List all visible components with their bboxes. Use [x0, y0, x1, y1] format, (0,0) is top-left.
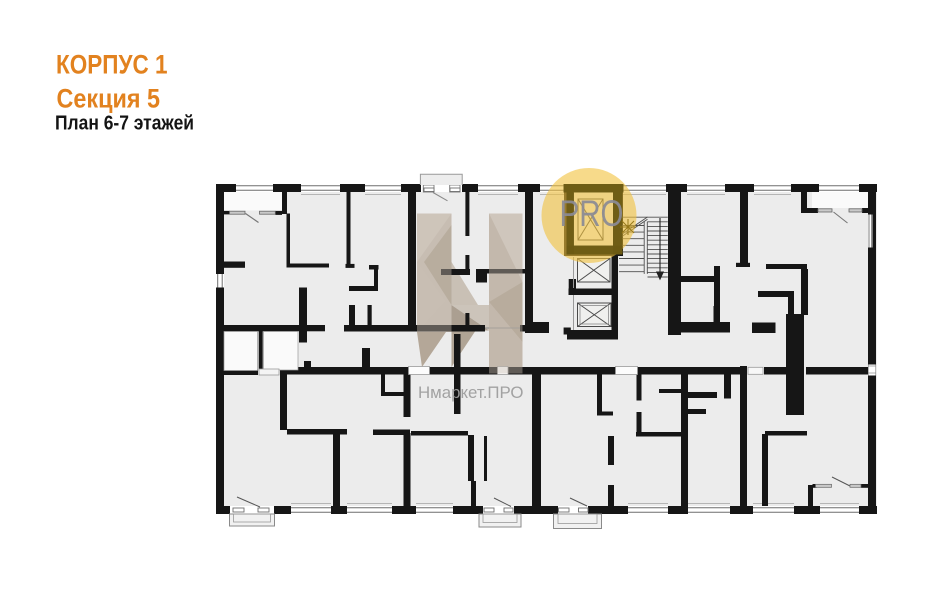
svg-text:План 6-7 этажей: План 6-7 этажей [55, 112, 194, 134]
svg-text:КОРПУС 1: КОРПУС 1 [56, 50, 168, 80]
svg-text:PRO: PRO [560, 193, 624, 234]
svg-text:Секция 5: Секция 5 [57, 83, 161, 113]
svg-text:Нмаркет.ПРО: Нмаркет.ПРО [418, 383, 524, 402]
